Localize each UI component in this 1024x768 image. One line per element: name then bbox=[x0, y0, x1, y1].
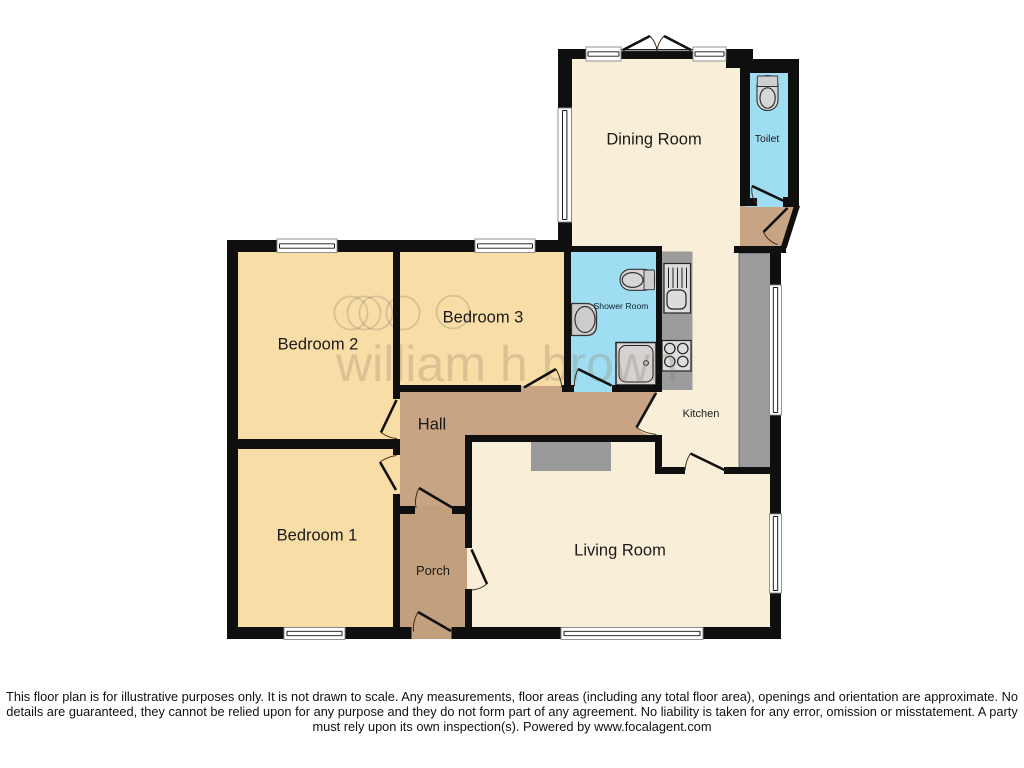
svg-text:Toilet: Toilet bbox=[755, 133, 780, 145]
svg-text:Shower Room: Shower Room bbox=[593, 301, 648, 311]
svg-text:Bedroom 3: Bedroom 3 bbox=[443, 309, 524, 327]
svg-text:Living Room: Living Room bbox=[574, 542, 666, 560]
svg-text:Kitchen: Kitchen bbox=[683, 408, 720, 420]
svg-text:Hall: Hall bbox=[418, 416, 446, 434]
svg-text:Porch: Porch bbox=[416, 563, 450, 578]
svg-text:william h brown: william h brown bbox=[335, 336, 678, 392]
svg-text:Dining Room: Dining Room bbox=[606, 131, 701, 149]
svg-text:Bedroom 1: Bedroom 1 bbox=[277, 527, 358, 545]
svg-text:Bedroom 2: Bedroom 2 bbox=[278, 336, 359, 354]
